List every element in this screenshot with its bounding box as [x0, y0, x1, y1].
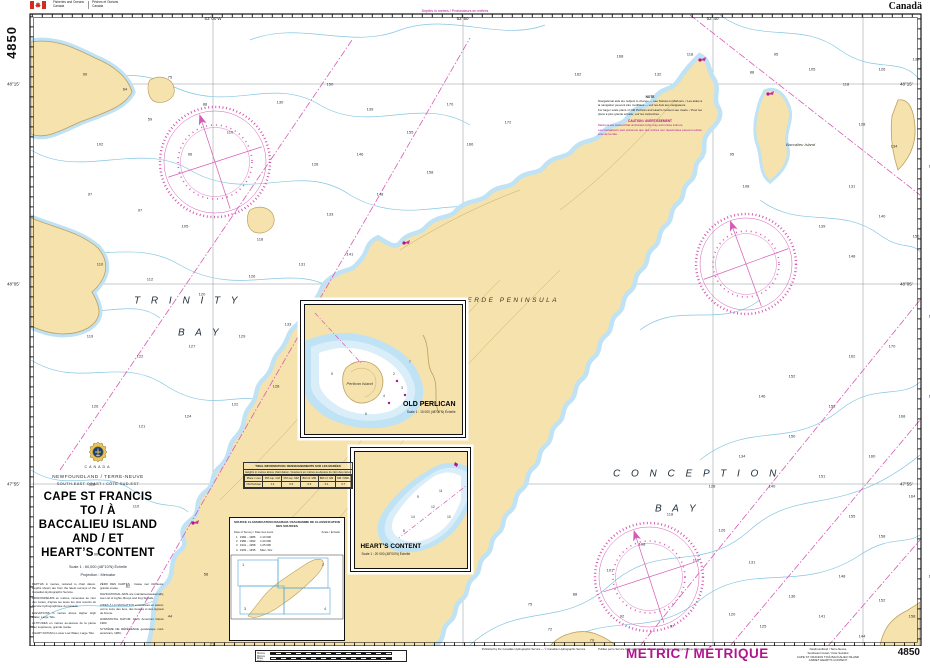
region-label: NEWFOUNDLAND / TERRE-NEUVE: [32, 474, 164, 479]
latitude-label: 47°55': [7, 482, 20, 487]
source-caption: SOURCE CLASSIFICATION DIAGRAM / DIAGRAMM…: [230, 518, 344, 529]
title-block: CANADA NEWFOUNDLAND / TERRE-NEUVE SOUTH-…: [32, 441, 164, 639]
old-perlican-map: 234 567: [305, 305, 463, 435]
source-col-scale: Scale / Échelle: [321, 530, 340, 534]
scalebar-units-bottom: Miles Milles: [257, 658, 269, 664]
coast-label: SOUTH-EAST COAST / CÔTE SUD-EST: [32, 482, 164, 486]
scale-bar: Metres Mètres Miles Milles: [255, 650, 407, 662]
metric-label: METRIC / MÉTRIQUE: [626, 646, 769, 661]
inset-title-hearts-content: HEART’S CONTENT: [361, 543, 422, 550]
chart-title-line: BACCALIEU ISLAND: [32, 518, 164, 532]
note-paragraph: AIDES À LA NAVIGATION entretenues en sai…: [100, 604, 164, 616]
tidal-cell: Old Perlican: [245, 482, 263, 488]
svg-text:8: 8: [403, 529, 405, 533]
source-classification-diagram: SOURCE CLASSIFICATION DIAGRAM / DIAGRAMM…: [229, 517, 345, 641]
note-paragraph: DEPTHS in metres, reduced to chart datum…: [32, 583, 96, 595]
chart-title-line: HEART’S CONTENT: [32, 546, 164, 560]
inset-title-old-perlican: OLD PERLICAN: [403, 401, 456, 408]
perlican-island-label: Perlican Island: [347, 381, 373, 386]
chart-title: CAPE ST FRANCISTO / ÀBACCALIEU ISLANDAND…: [32, 490, 164, 560]
source-row: 4 1903 – 1935 Misc / Div: [230, 548, 344, 552]
publisher-en: Published by the Canadian Hydrographic S…: [478, 648, 589, 652]
chart-title-line: AND / ET: [32, 532, 164, 546]
note-paragraph: ELEVATIONS in metres above Higher High W…: [32, 612, 96, 620]
note-paragraph: ALTITUDES en mètres au-dessus de la plei…: [32, 622, 96, 630]
note-paragraph: ZÉRO DES CARTES : basse mer inférieure, …: [100, 583, 164, 591]
caution-text: Les navigateurs sont prévenus que des ro…: [598, 129, 702, 137]
inset-scale-hearts-content: Scale 1 : 20 000 (48°00'N) Échelle: [362, 552, 411, 556]
latitude-label: 48°05': [7, 282, 20, 287]
svg-text:6: 6: [365, 412, 367, 416]
chart-notes: DEPTHS in metres, reduced to chart datum…: [32, 583, 164, 639]
svg-text:4: 4: [383, 394, 385, 398]
tidal-caption: TIDAL INFORMATION / RENSEIGNEMENTS SUR L…: [244, 463, 352, 470]
chart-title-line: CAPE ST FRANCIS: [32, 490, 164, 504]
source-mini-map: 1234: [230, 554, 344, 620]
latitude-label: 48°15': [7, 82, 20, 87]
tidal-information-table: TIDAL INFORMATION / RENSEIGNEMENTS SUR L…: [243, 462, 353, 489]
svg-text:3: 3: [401, 386, 403, 390]
svg-text:7: 7: [409, 360, 411, 364]
country-label: CANADA: [32, 465, 164, 469]
tidal-cell: 0.9: [282, 482, 301, 488]
svg-text:5: 5: [331, 372, 333, 376]
note-paragraph: SYSTÈME DE RÉFÉRENCE géodésique nord-amé…: [100, 628, 164, 636]
chs-crest-icon: [88, 441, 108, 463]
nautical-chart-sheet: Fisheries and Oceans Canada Pêches et Oc…: [0, 0, 930, 668]
note-paragraph: CHART DATUM is Lower Low Water, Large Ti…: [32, 632, 96, 636]
chart-number: 4850: [898, 647, 920, 658]
tidal-cell: 0.1: [318, 482, 335, 488]
source-col-survey: Date of Survey / Date des levés: [234, 530, 273, 534]
chart-title-line: TO / À: [32, 504, 164, 518]
corner-identification: Newfoundland / Terre-NeuveSoutheast Coas…: [768, 648, 888, 663]
note-paragraph: NAVIGATIONAL AIDS are maintained seasona…: [100, 593, 164, 601]
longitude-label: 53°00'W: [205, 16, 222, 21]
longitude-label: 52°40': [707, 16, 720, 21]
tidal-cell: 1.2: [263, 482, 282, 488]
svg-text:2: 2: [393, 372, 395, 376]
chart-note-box: NOTE Navigational aids are subject to ch…: [598, 93, 702, 138]
tidal-cell: 0.3: [301, 482, 318, 488]
svg-text:12: 12: [431, 505, 435, 509]
inset-hearts-content: 91214 11810 HEART’S CONTENT Scale 1 : 20…: [350, 447, 471, 572]
longitude-label: 52°50': [457, 16, 470, 21]
corner-id-line: AND/ET HEART’S CONTENT: [768, 659, 888, 663]
note-paragraph: PROFONDEURS en mètres, ramenées au zéro …: [32, 597, 96, 609]
chart-projection: Projection : Mercator: [32, 573, 164, 577]
latitude-label: 48°05': [900, 282, 913, 287]
inset-scale-old-perlican: Scale 1 : 15 000 (48°00'N) Échelle: [407, 410, 456, 414]
svg-text:11: 11: [439, 489, 443, 493]
bottom-margin: Metres Mètres Miles Milles Published by …: [0, 646, 930, 668]
depth-unit-caption: Depths in metres / Profondeurs en mètres: [422, 9, 489, 13]
baccalieu-island: [756, 91, 789, 180]
svg-text:10: 10: [447, 515, 451, 519]
latitude-label: 47°55': [900, 482, 913, 487]
chart-scale: Scale 1 : 60,000 (48°10'N) Échelle: [32, 565, 164, 569]
note-text: Navigational aids are subject to change …: [598, 100, 702, 108]
svg-text:9: 9: [417, 495, 419, 499]
caution-text: Mariners are warned that uncharted rocks…: [598, 124, 702, 128]
latitude-label: 48°15': [900, 82, 913, 87]
note-paragraph: HORIZONTAL DATUM: North American Datum 1…: [100, 618, 164, 626]
inset-old-perlican: 234 567 OLD PERLICAN Scale 1 : 15 000 (4…: [300, 300, 466, 438]
note-text: For larger scale plans of Old Perlican a…: [598, 109, 702, 117]
tidal-cell: 0.7: [335, 482, 351, 488]
svg-text:14: 14: [411, 515, 415, 519]
tidal-row: Old Perlican1.20.90.30.10.7: [245, 482, 352, 488]
